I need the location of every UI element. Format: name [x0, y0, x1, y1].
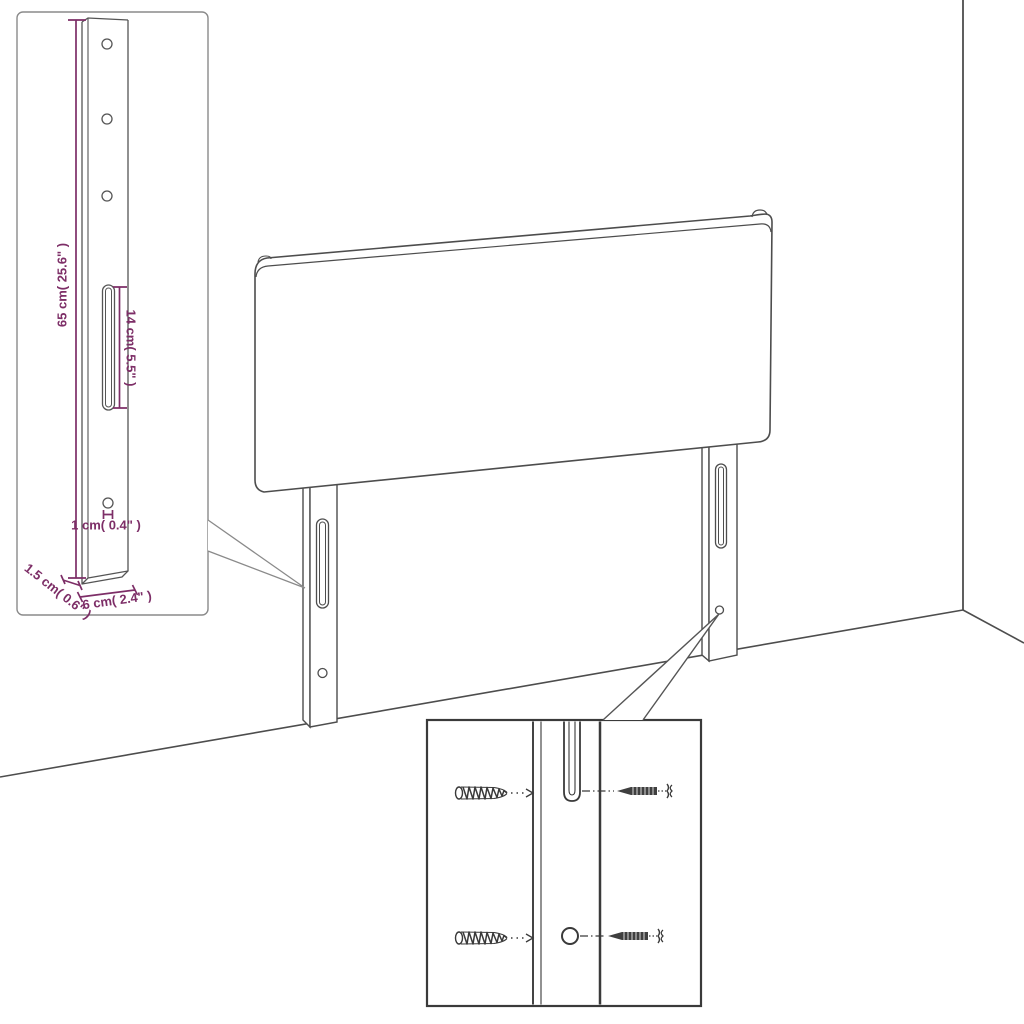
inset-leg-hole-2	[102, 114, 112, 124]
floor-line-right	[963, 610, 1024, 643]
dimension-label-hole: 1 cm( 0.4" )	[71, 518, 141, 533]
left-leg-side-face	[303, 466, 310, 727]
left-leg-slot	[317, 519, 329, 608]
closeup-hole	[562, 928, 578, 944]
inset-leg-hole-1	[102, 39, 112, 49]
dimension-label-slot: 14 cm( 5.5" )	[124, 310, 139, 387]
right-leg-slot	[716, 464, 727, 548]
panel-outline	[255, 214, 772, 492]
inset-leg-slot	[103, 285, 115, 410]
headboard-left-leg	[303, 464, 337, 727]
diagram-canvas: 65 cm( 25.6" ) 14 cm( 5.5" ) 1 cm( 0.4" …	[0, 0, 1024, 1024]
inset-leg-small-hole	[103, 498, 113, 508]
dimension-label-height: 65 cm( 25.6" )	[55, 243, 70, 327]
left-leg-hole	[318, 669, 327, 678]
inset-leg-hole-3	[102, 191, 112, 201]
right-leg-hole	[716, 606, 724, 614]
headboard-panel	[255, 210, 772, 492]
bottom-inset-pointer-lines	[603, 614, 719, 720]
screw-mounting-detail-inset	[427, 614, 719, 1006]
diagram-art	[0, 0, 1024, 1024]
